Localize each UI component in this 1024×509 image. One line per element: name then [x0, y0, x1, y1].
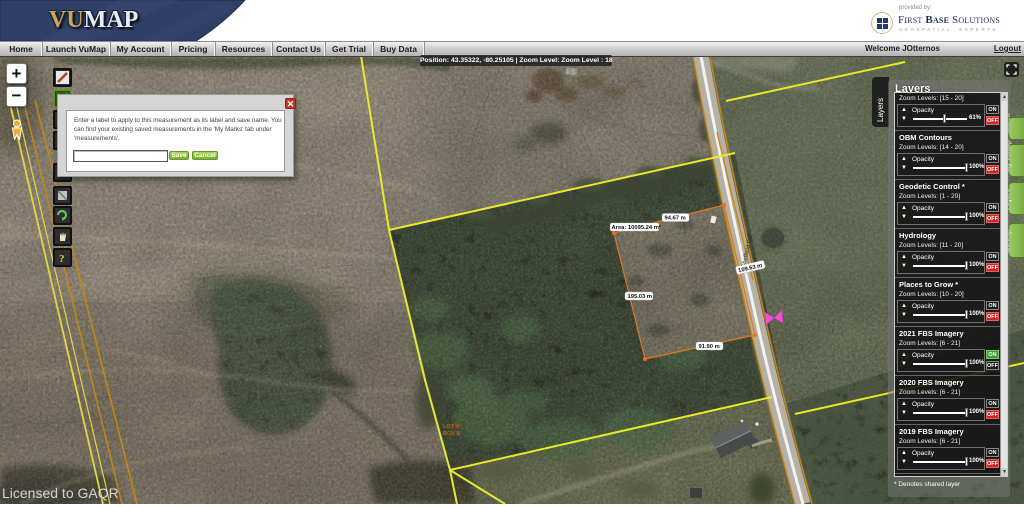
svg-text:94.67 m: 94.67 m [665, 216, 686, 222]
svg-text:Area: 10095.24 m²: Area: 10095.24 m² [612, 224, 661, 231]
svg-text:LOT H: LOT H [443, 424, 460, 430]
svg-text:?: ? [59, 253, 65, 265]
svg-text:BCN B: BCN B [443, 431, 460, 437]
svg-text:91.90 m: 91.90 m [699, 344, 720, 350]
svg-text:195.03 m: 195.03 m [628, 294, 653, 300]
